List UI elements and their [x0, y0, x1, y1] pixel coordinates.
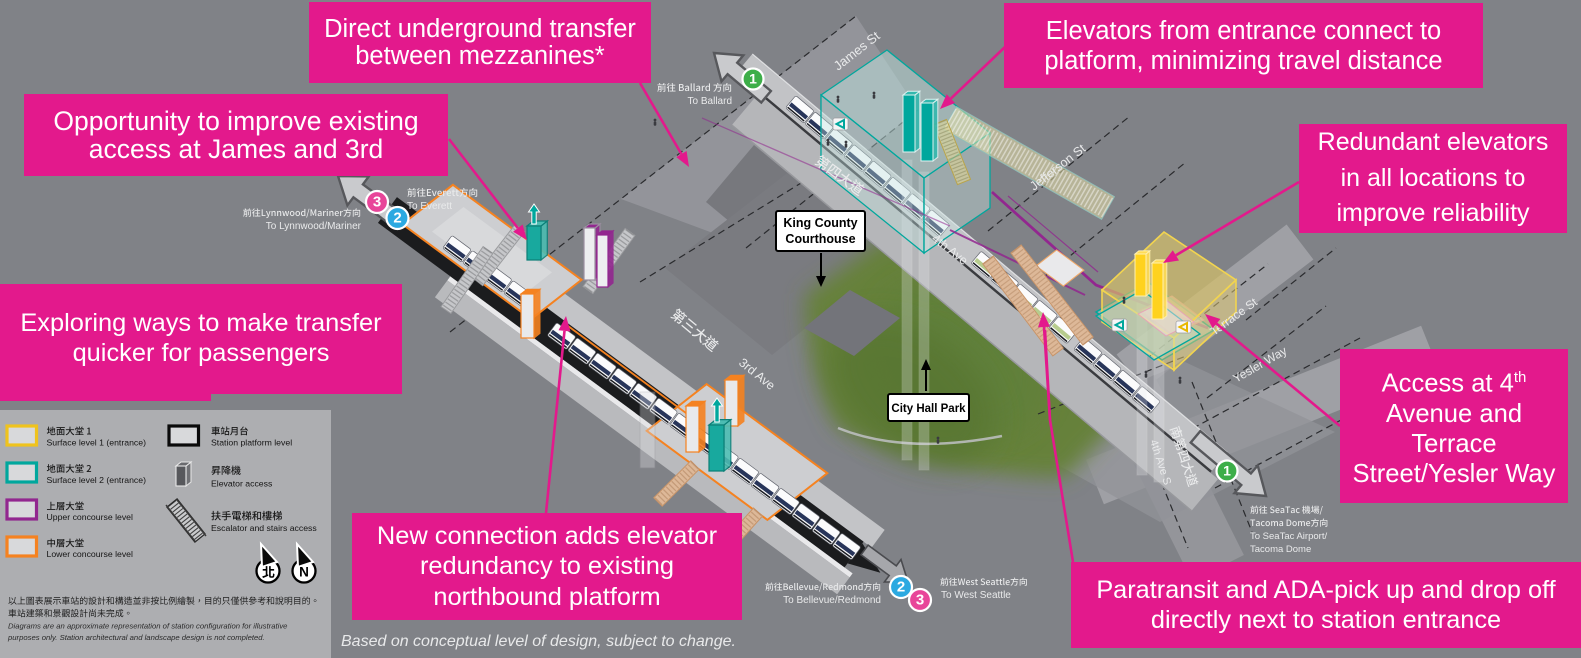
svg-text:Upper concourse level: Upper concourse level	[47, 512, 134, 522]
svg-text:Lower concourse level: Lower concourse level	[47, 549, 134, 559]
svg-text:Elevator access: Elevator access	[211, 479, 273, 489]
svg-text:Surface level 2 (entrance): Surface level 2 (entrance)	[47, 475, 147, 485]
svg-text:purposes only. Station archit: purposes only. Station architectural and…	[7, 633, 265, 642]
svg-text:N: N	[299, 565, 309, 580]
svg-text:Surface level 1 (entrance): Surface level 1 (entrance)	[47, 438, 147, 448]
svg-text:Diagrams are an approximate re: Diagrams are an approximate representati…	[8, 622, 287, 631]
svg-text:Escalator and stairs access: Escalator and stairs access	[211, 523, 317, 533]
svg-text:Station platform level: Station platform level	[211, 438, 292, 448]
